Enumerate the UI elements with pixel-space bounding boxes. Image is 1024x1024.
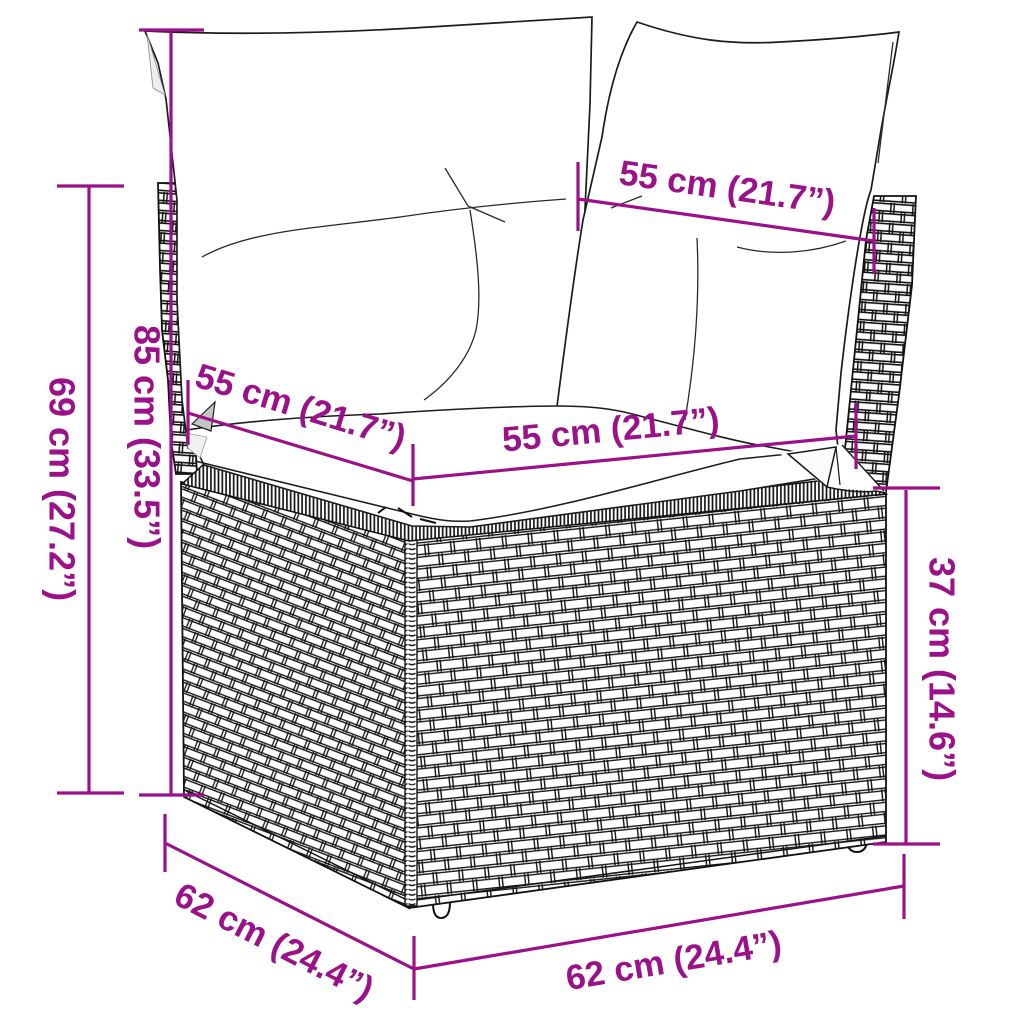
svg-text:37 cm (14.6”): 37 cm (14.6”) — [921, 557, 962, 781]
svg-text:69 cm (27.2”): 69 cm (27.2”) — [41, 377, 82, 601]
svg-text:85 cm (33.5”): 85 cm (33.5”) — [126, 325, 167, 549]
